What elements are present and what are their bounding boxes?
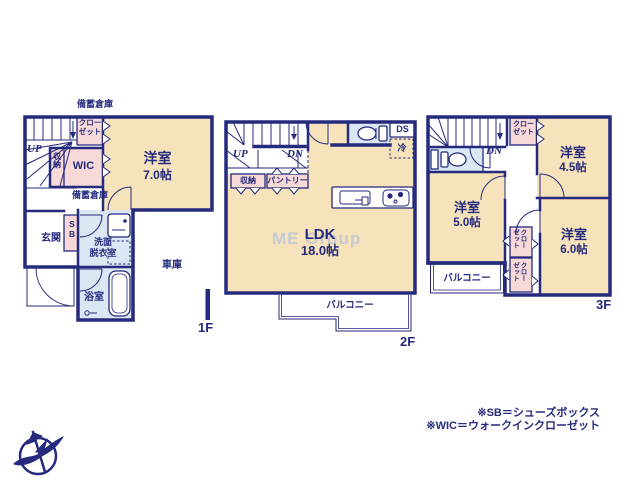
- door-arc-entrance: [36, 268, 74, 306]
- storage-label-2f: 収納: [231, 176, 265, 185]
- closet-top-label-3f: クローゼット: [509, 121, 538, 138]
- floor2-label: 2F: [400, 334, 415, 349]
- ds-label: DS: [391, 124, 414, 135]
- dn-label-2f: DN: [287, 148, 303, 161]
- storage-small-label: 収納: [52, 152, 61, 168]
- stove-icon: [383, 190, 409, 206]
- garage-label: 車庫: [152, 260, 192, 272]
- bathtub-icon: [109, 271, 130, 316]
- room60-label: 洋室: [540, 227, 608, 242]
- legend-wic: ※WIC＝ウォークインクローゼット: [340, 417, 600, 433]
- closet-label-1f: クローゼット: [76, 119, 104, 137]
- garage-wall: [206, 289, 211, 320]
- compass-icon: [13, 432, 64, 474]
- bathroom-label: 浴室: [79, 292, 109, 304]
- storage-mid-label: 備蓄倉庫: [50, 190, 130, 201]
- toilet-icon: [358, 126, 387, 141]
- up-label-2f: UP: [233, 148, 248, 161]
- closet-a-label: クローゼット: [511, 229, 526, 249]
- ldk-label: LDK: [276, 226, 364, 244]
- fridge-label: 冷: [391, 143, 413, 154]
- washroom-label: 洗面脱衣室: [78, 237, 128, 258]
- up-label-1f: UP: [27, 143, 42, 156]
- closet-b-label: クローゼット: [511, 262, 526, 282]
- toilet-icon: [431, 150, 466, 169]
- room-label-1f: 洋室: [103, 150, 212, 167]
- storage-top-label: 備蓄倉庫: [55, 99, 135, 110]
- pantry-label: パントリー: [267, 176, 308, 185]
- dn-label-3f: DN: [486, 145, 502, 158]
- stairs-icon: [428, 117, 503, 147]
- wic-label: WIC: [64, 160, 103, 173]
- shoebox-label: SB: [67, 219, 77, 239]
- floor3-label: 3F: [596, 297, 611, 312]
- kitchen-counter-icon: [332, 187, 413, 208]
- floor1-label: 1F: [198, 320, 213, 335]
- sink-icon: [108, 214, 130, 237]
- room60-size-label: 6.0帖: [540, 244, 608, 258]
- room50-label: 洋室: [430, 200, 504, 215]
- room50-size-label: 5.0帖: [430, 217, 504, 231]
- balcony-label-2f: バルコニー: [310, 300, 390, 311]
- room45-size-label: 4.5帖: [538, 162, 608, 176]
- balcony-label-3f: バルコニー: [430, 273, 504, 284]
- floor1-plan: [25, 117, 212, 320]
- porch-outline: [27, 267, 74, 306]
- room45-label: 洋室: [538, 145, 608, 160]
- ldk-size-label: 18.0帖: [276, 243, 364, 258]
- room-size-label-1f: 7.0帖: [103, 168, 212, 182]
